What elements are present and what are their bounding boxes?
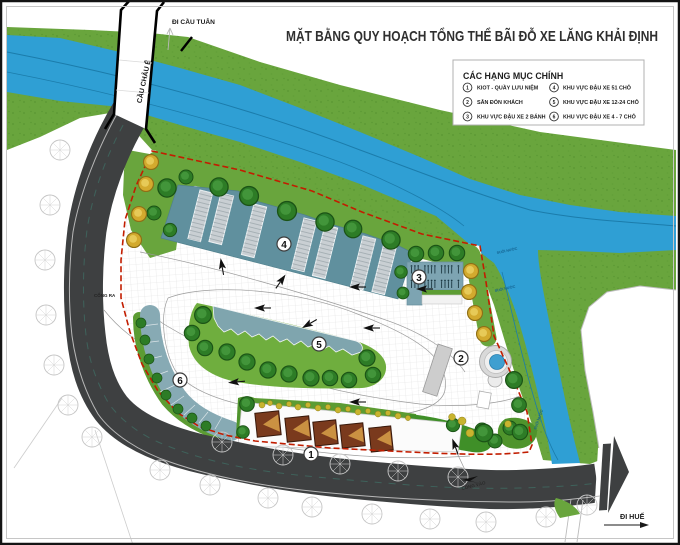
svg-text:1: 1 <box>466 86 469 92</box>
svg-text:SÂN ĐÓN KHÁCH: SÂN ĐÓN KHÁCH <box>477 98 523 106</box>
svg-text:2: 2 <box>466 100 469 106</box>
svg-text:3: 3 <box>416 273 422 284</box>
svg-text:2: 2 <box>458 354 464 365</box>
svg-text:3: 3 <box>466 115 469 121</box>
svg-text:6: 6 <box>553 115 556 121</box>
svg-text:4: 4 <box>553 86 556 92</box>
svg-text:CÁC HẠNG MỤC CHÍNH: CÁC HẠNG MỤC CHÍNH <box>463 71 563 81</box>
svg-text:KHU VỰC ĐẬU XE 12-24 CHỖ: KHU VỰC ĐẬU XE 12-24 CHỖ <box>563 99 639 106</box>
svg-text:CỔNG RA: CỔNG RA <box>94 292 116 298</box>
svg-text:5: 5 <box>553 100 556 106</box>
svg-text:1: 1 <box>308 450 314 461</box>
svg-text:MẶT BẰNG QUY HOẠCH TỔNG THỂ BÃ: MẶT BẰNG QUY HOẠCH TỔNG THỂ BÃI ĐỖ XE LĂ… <box>286 27 658 45</box>
svg-text:ĐI HUẾ: ĐI HUẾ <box>620 511 645 521</box>
svg-text:4: 4 <box>281 240 287 251</box>
svg-text:5: 5 <box>316 340 322 351</box>
svg-text:KIOT - QUẦY LƯU NIỆM: KIOT - QUẦY LƯU NIỆM <box>477 84 539 92</box>
svg-text:KHU VỰC ĐẬU XE 2 BÁNH: KHU VỰC ĐẬU XE 2 BÁNH <box>477 114 546 121</box>
svg-text:KHU VỰC ĐẬU XE 51 CHỖ: KHU VỰC ĐẬU XE 51 CHỖ <box>563 85 631 92</box>
svg-text:KHU VỰC ĐẬU XE 4 - 7 CHỖ: KHU VỰC ĐẬU XE 4 - 7 CHỖ <box>563 114 636 121</box>
svg-text:6: 6 <box>177 376 183 387</box>
